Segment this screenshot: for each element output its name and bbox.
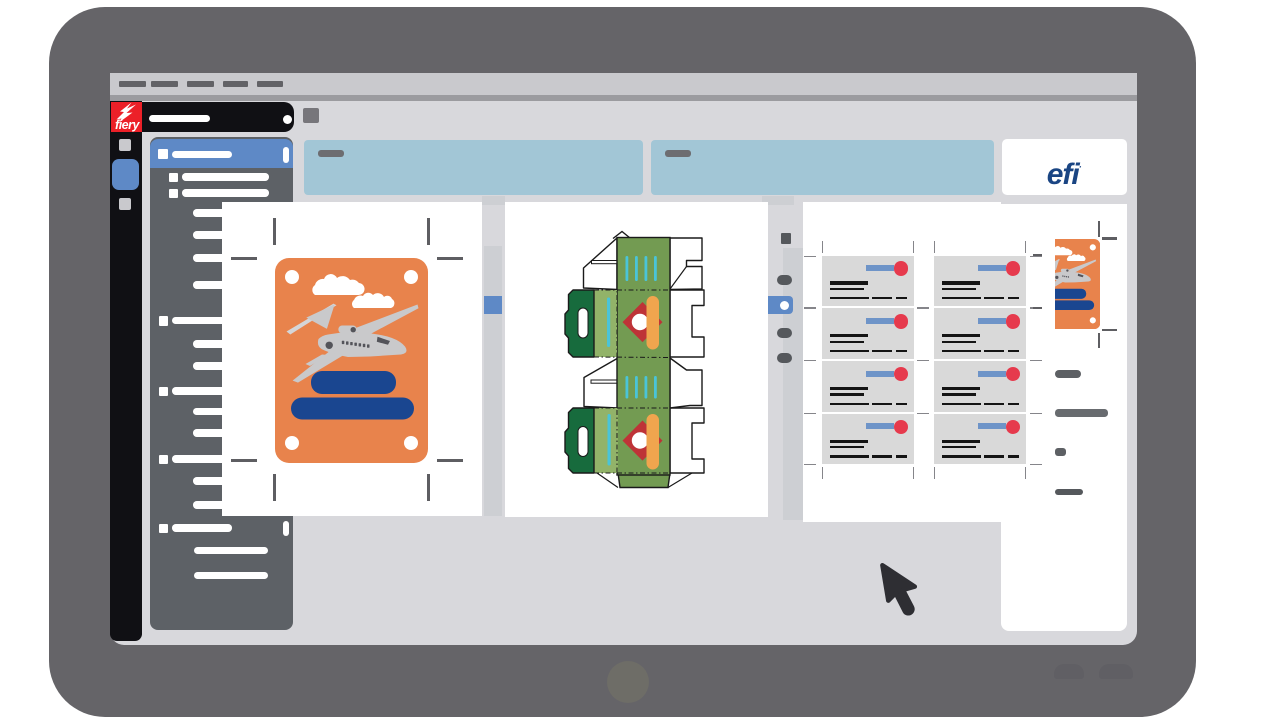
svg-text:fiery: fiery <box>115 118 140 132</box>
